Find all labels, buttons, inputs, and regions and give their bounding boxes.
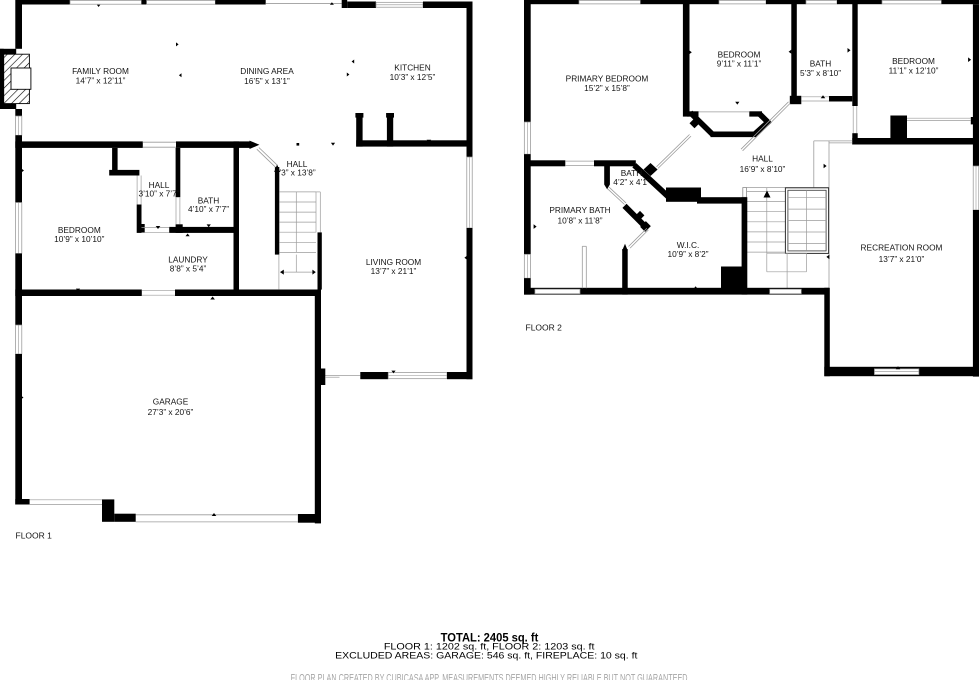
svg-text:PRIMARY BEDROOM: PRIMARY BEDROOM <box>566 73 649 83</box>
svg-text:FAMILY ROOM: FAMILY ROOM <box>72 66 129 76</box>
svg-text:16’9” x 8’10”: 16’9” x 8’10” <box>740 164 786 174</box>
svg-text:14’7” x 12’11”: 14’7” x 12’11” <box>76 75 126 85</box>
svg-text:10’8” x 11’8”: 10’8” x 11’8” <box>557 215 602 225</box>
svg-text:GARAGE: GARAGE <box>153 396 189 406</box>
svg-text:EXCLUDED AREAS: GARAGE: 546 sq: EXCLUDED AREAS: GARAGE: 546 sq. ft, FIRE… <box>335 650 638 661</box>
svg-text:”3” x 13’8”: ”3” x 13’8” <box>278 168 316 178</box>
svg-text:FLOOR PLAN CREATED BY CUBICASA: FLOOR PLAN CREATED BY CUBICASA APP. MEAS… <box>291 672 688 680</box>
svg-text:4’10” x 7’7”: 4’10” x 7’7” <box>188 204 229 214</box>
svg-text:PRIMARY BATH: PRIMARY BATH <box>549 205 610 215</box>
svg-text:8’8” x 5’4”: 8’8” x 5’4” <box>170 263 207 273</box>
svg-text:FLOOR 1: FLOOR 1 <box>16 530 53 540</box>
svg-text:27’3” x 20’6”: 27’3” x 20’6” <box>148 407 194 417</box>
svg-text:3’10” x 7’7”: 3’10” x 7’7” <box>138 188 179 198</box>
svg-text:4’2” x 4’1”: 4’2” x 4’1” <box>613 177 650 187</box>
svg-text:DINING AREA: DINING AREA <box>240 66 294 76</box>
svg-text:13’7” x 21’0”: 13’7” x 21’0” <box>879 254 925 264</box>
svg-text:11’1” x 12’10”: 11’1” x 12’10” <box>889 65 939 75</box>
svg-text:HALL: HALL <box>752 153 773 163</box>
svg-text:BATH: BATH <box>810 58 832 68</box>
svg-text:BEDROOM: BEDROOM <box>892 56 935 66</box>
svg-text:15’2” x 15’8”: 15’2” x 15’8” <box>584 83 630 93</box>
svg-text:10’9” x 10’10”: 10’9” x 10’10” <box>54 234 105 244</box>
svg-text:10’3” x 12’5”: 10’3” x 12’5” <box>390 72 436 82</box>
svg-text:10’9” x 8’2”: 10’9” x 8’2” <box>667 249 708 259</box>
svg-text:KITCHEN: KITCHEN <box>394 62 430 72</box>
svg-text:RECREATION ROOM: RECREATION ROOM <box>861 242 943 252</box>
svg-text:16’5” x 13’1”: 16’5” x 13’1” <box>244 76 290 86</box>
svg-text:FLOOR 2: FLOOR 2 <box>526 323 563 333</box>
svg-text:5’3” x 8’10”: 5’3” x 8’10” <box>800 68 841 78</box>
svg-text:9’11” x 11’1”: 9’11” x 11’1” <box>717 58 762 68</box>
svg-text:13’7” x 21’1”: 13’7” x 21’1” <box>371 266 417 276</box>
